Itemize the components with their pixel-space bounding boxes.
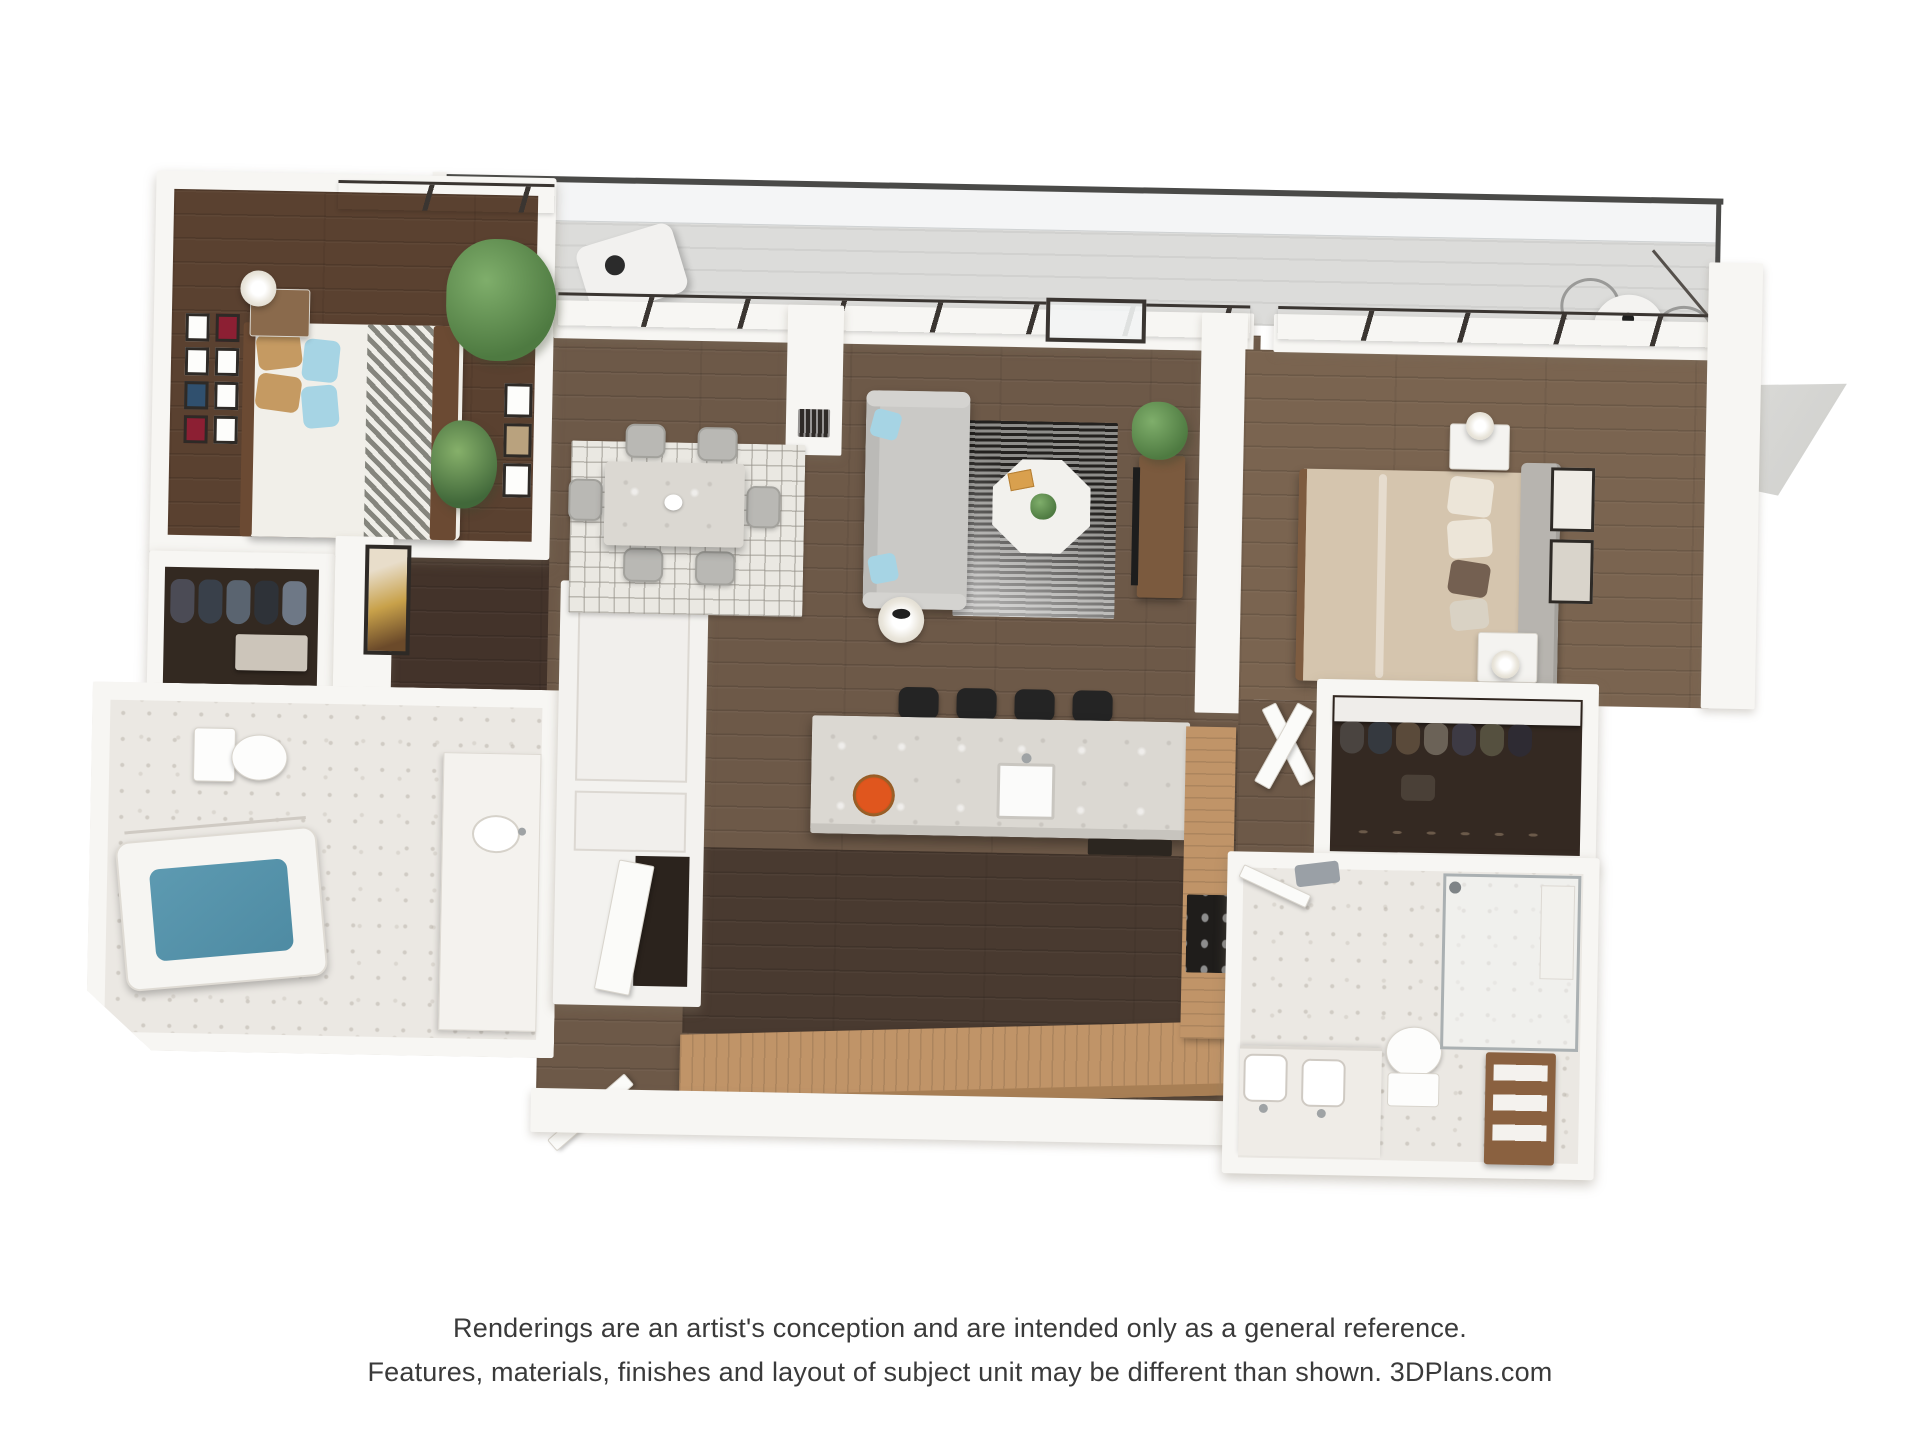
master-vanity-sink-2: [1301, 1059, 1346, 1108]
hanging-clothes: [1508, 725, 1533, 757]
gallery-frame: [214, 382, 239, 410]
dining-chair: [746, 486, 781, 529]
gallery-frame: [215, 348, 240, 376]
hanging-clothes: [1424, 723, 1449, 755]
kitchen-floor: [682, 847, 1185, 1043]
disclaimer-line-2: Features, materials, finishes and layout…: [0, 1350, 1920, 1394]
hanging-clothes: [254, 580, 279, 624]
disclaimer-line-1: Renderings are an artist's conception an…: [0, 1306, 1920, 1350]
master-vanity-sink-1: [1243, 1054, 1288, 1103]
bar-stool: [898, 687, 939, 720]
bed-chevron-throw: [364, 325, 434, 540]
dining-chair: [697, 427, 738, 462]
laundry-door-panel-top: [575, 599, 690, 783]
master-pillow-1: [1446, 475, 1494, 518]
bed-pillow-blue-1: [301, 338, 341, 384]
dining-chair: [625, 424, 666, 459]
hanging-clothes: [1368, 722, 1393, 754]
master-closet-bag: [1401, 774, 1435, 801]
disclaimer-caption: Renderings are an artist's conception an…: [0, 1306, 1920, 1394]
dining-chair: [623, 548, 664, 583]
gallery-frame: [504, 383, 533, 418]
laundry-door-panel-bottom: [574, 791, 687, 853]
gallery-frame: [215, 314, 240, 342]
dining-chair: [695, 551, 736, 586]
bathtub-water: [149, 858, 294, 961]
master-pillow-accent-dark: [1447, 559, 1492, 599]
gallery-frame: [502, 463, 531, 498]
bed-pillow-blue-2: [300, 384, 339, 429]
tv-console-living: [1137, 455, 1186, 598]
cooktop: [1185, 894, 1228, 973]
master-wall-frame-2: [1549, 539, 1594, 604]
coffee-table-plant: [1030, 493, 1056, 519]
hanging-clothes: [1452, 723, 1477, 755]
hanging-clothes: [198, 579, 223, 623]
hanging-clothes: [282, 581, 307, 625]
floorplan-rendering-page: Renderings are an artist's conception an…: [0, 0, 1920, 1440]
gallery-frame: [213, 416, 238, 444]
master-pillow-accent-light: [1449, 598, 1490, 632]
sofa-pillow-blue-bottom: [867, 552, 900, 585]
toilet-1-tank: [193, 727, 236, 782]
gallery-frame: [503, 423, 532, 458]
hanging-clothes: [226, 580, 251, 624]
bed-pillow-tan-2: [254, 372, 303, 414]
island-sink: [996, 763, 1055, 820]
gallery-frame: [184, 381, 209, 409]
floorplan-3d: [0, 0, 1920, 1278]
hanging-clothes: [1396, 722, 1421, 754]
hanging-clothes: [1480, 724, 1505, 756]
dining-wall-frames: [502, 383, 534, 504]
vanity-1-faucet: [518, 828, 526, 836]
gallery-frame: [185, 313, 210, 341]
toilet-2-tank: [1387, 1072, 1440, 1107]
bar-stool: [1014, 689, 1055, 722]
hall-artwork: [363, 545, 411, 656]
hanging-clothes: [1340, 721, 1365, 753]
sofa-armrest-top: [866, 390, 970, 408]
balcony-door: [1046, 298, 1147, 344]
gallery-frame: [185, 347, 210, 375]
ac-vent-grille: [798, 409, 831, 438]
living-floor-lamp-shade-band: [892, 609, 910, 619]
bath-vanity-1: [438, 752, 541, 1032]
gallery-frame: [183, 415, 208, 443]
master-pillow-2: [1447, 518, 1493, 559]
hanging-clothes: [170, 579, 195, 623]
closet-1-clothes-rail: [170, 579, 321, 630]
linen-towels: [1492, 1064, 1548, 1153]
master-right-wall: [1701, 262, 1764, 709]
closet-1-dresser: [235, 634, 308, 671]
island-dishwasher: [1088, 838, 1172, 856]
dining-chair: [568, 478, 603, 521]
bedroom-1-gallery-wall: [183, 313, 244, 448]
master-wall-frame-1: [1550, 467, 1595, 532]
shower-bench: [1539, 885, 1575, 980]
bedroom-1-window-band: [338, 180, 555, 213]
bar-stool: [956, 688, 997, 721]
master-closet-clothes: [1340, 721, 1577, 760]
bar-stool: [1072, 690, 1113, 723]
